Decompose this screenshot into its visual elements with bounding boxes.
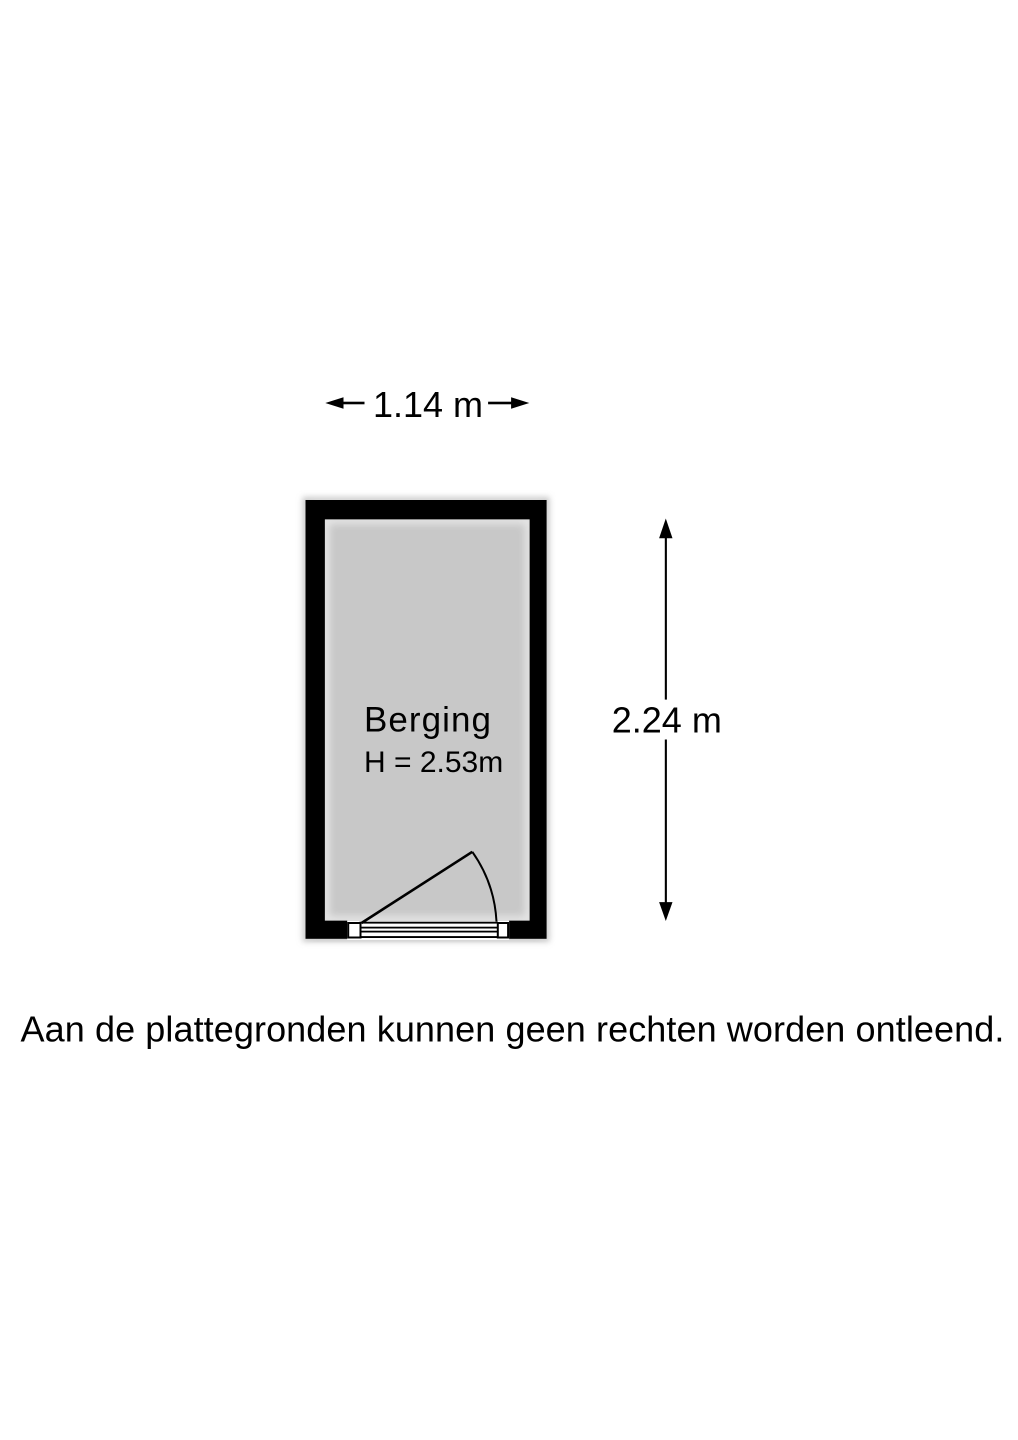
svg-text:2.24 m: 2.24 m [612, 700, 722, 741]
svg-text:H = 2.53m: H = 2.53m [364, 746, 503, 779]
svg-text:Berging: Berging [364, 700, 492, 739]
svg-text:1.14 m: 1.14 m [373, 384, 483, 425]
svg-text:Aan de plattegronden kunnen ge: Aan de plattegronden kunnen geen rechten… [21, 1008, 1005, 1049]
